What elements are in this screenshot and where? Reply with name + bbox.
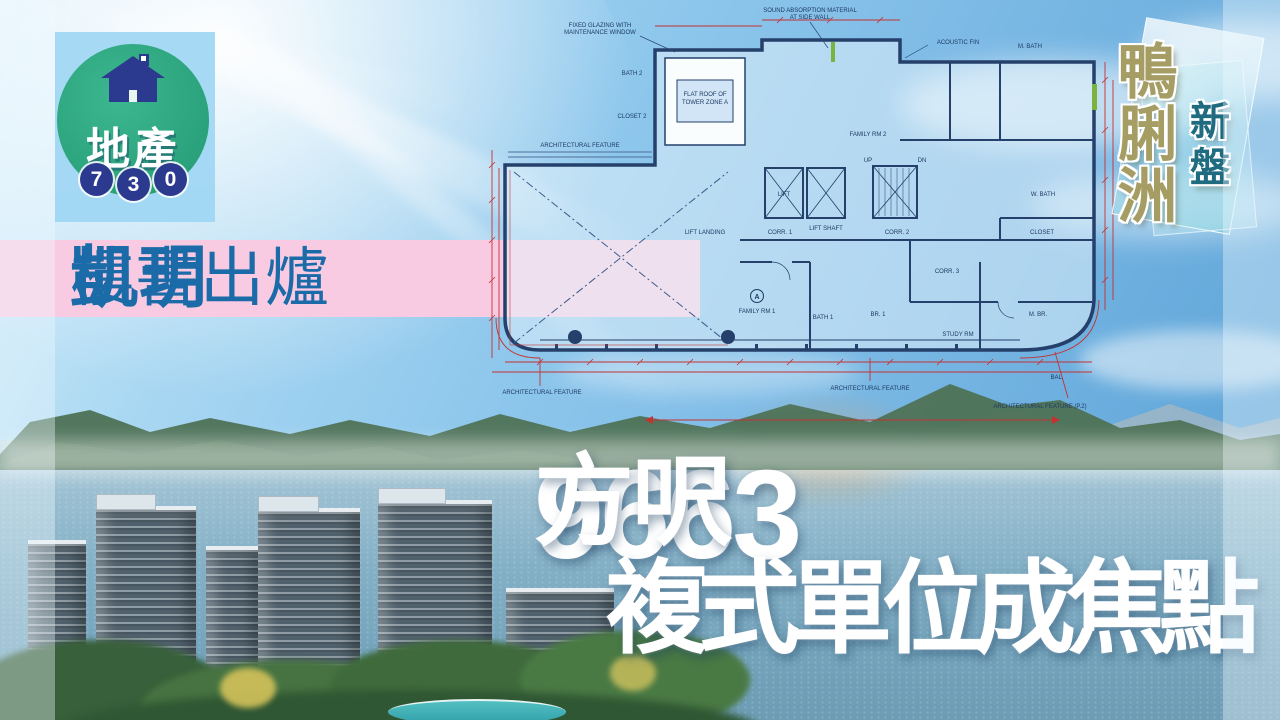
plan-label: SOUND ABSORPTION MATERIAL bbox=[763, 8, 857, 14]
plan-label: UP bbox=[864, 158, 872, 164]
plan-label: ARCHITECTURAL FEATURE (P.2) bbox=[993, 404, 1086, 410]
badge-new-launch-text: 新盤 bbox=[1186, 100, 1226, 192]
flowering-tree bbox=[220, 668, 276, 708]
news-graphic: 凱玥樓書出爐 bbox=[0, 0, 1280, 720]
logo-name-text: 地產 bbox=[57, 128, 209, 172]
plan-label: MAINTENANCE WINDOW bbox=[564, 30, 636, 36]
plan-label: BAL. bbox=[1050, 375, 1063, 381]
plan-label: CORR. 3 bbox=[935, 269, 960, 275]
plan-label: FAMILY RM 2 bbox=[850, 132, 887, 138]
plan-label: LIFT LANDING bbox=[685, 230, 726, 236]
plan-label: ARCHITECTURAL FEATURE bbox=[502, 390, 581, 396]
plan-label: FLAT ROOF OF bbox=[683, 92, 726, 98]
plan-label: CLOSET 2 bbox=[618, 114, 648, 120]
plan-label: AT SIDE WALL bbox=[790, 15, 831, 21]
floor-plan-drawing: ARCHITECTURAL FEATURE FLAT ROOF OF TOWER… bbox=[480, 0, 1120, 430]
plan-label: M. BR. bbox=[1029, 312, 1048, 318]
banner-title-rest: 樓書出爐 bbox=[70, 243, 330, 313]
plan-label: ARCHITECTURAL FEATURE bbox=[540, 143, 619, 149]
plan-label: M. BATH bbox=[1018, 44, 1042, 50]
plan-label: FAMILY RM 1 bbox=[739, 309, 776, 315]
logo-digit: 7 bbox=[80, 163, 113, 196]
plan-label: ARCHITECTURAL FEATURE bbox=[830, 386, 909, 392]
plan-label: BATH 1 bbox=[813, 315, 834, 321]
plan-label: FIXED GLAZING WITH bbox=[569, 23, 632, 29]
tower-crown bbox=[258, 496, 319, 512]
tower-crown bbox=[378, 488, 446, 504]
plan-label: TOWER ZONE A bbox=[682, 100, 728, 106]
plan-label: CLOSET bbox=[1030, 230, 1054, 236]
plan-label: CORR. 2 bbox=[885, 230, 910, 236]
logo-digit: 0 bbox=[154, 163, 187, 196]
plan-label: LIFT bbox=[778, 192, 791, 198]
swimming-pool bbox=[388, 699, 566, 720]
plan-walls bbox=[505, 40, 1094, 350]
badge-location-text: 鴨脷洲 bbox=[1112, 40, 1172, 226]
plan-label: LIFT SHAFT bbox=[809, 226, 843, 232]
plan-label: BR. 1 bbox=[870, 312, 886, 318]
plan-label: CORR. 1 bbox=[768, 230, 793, 236]
house-icon bbox=[99, 52, 167, 104]
tower-crown bbox=[96, 494, 156, 510]
plan-label: STUDY RM bbox=[942, 332, 973, 338]
plan-label: BATH 2 bbox=[622, 71, 643, 77]
section-marker-letter: A bbox=[754, 294, 759, 301]
logo-digit: 3 bbox=[117, 168, 150, 201]
headline-focus-line: 複式單位成焦點 bbox=[606, 558, 1250, 660]
plan-label: ACOUSTIC FIN bbox=[937, 40, 979, 46]
plan-label: DN bbox=[918, 158, 927, 164]
headline-area-unit: 方呎 bbox=[534, 452, 730, 552]
plan-label: W. BATH bbox=[1031, 192, 1055, 198]
